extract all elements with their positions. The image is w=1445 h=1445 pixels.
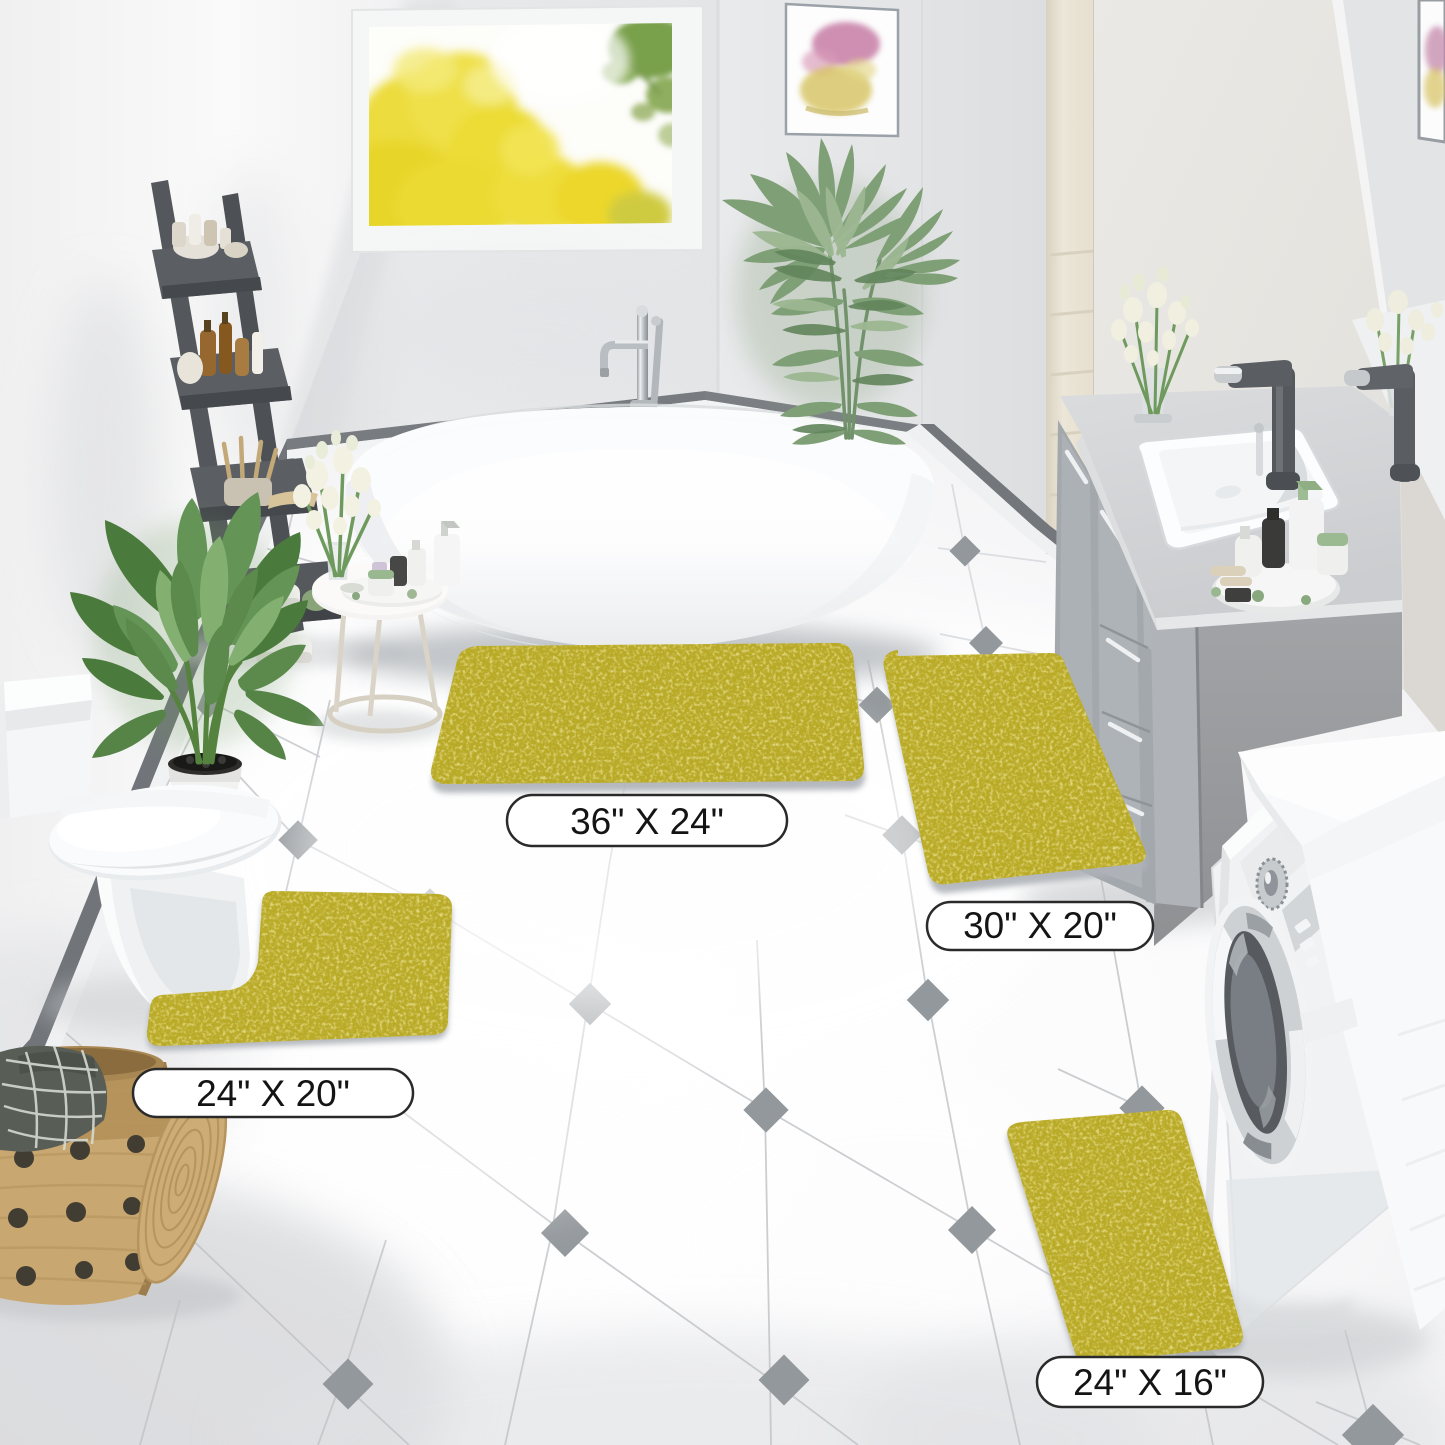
svg-text:30" X 20": 30" X 20" [963, 905, 1117, 946]
svg-text:36" X 24": 36" X 24" [570, 801, 724, 842]
svg-text:24" X 20": 24" X 20" [196, 1073, 350, 1114]
svg-text:24" X 16": 24" X 16" [1073, 1362, 1227, 1403]
